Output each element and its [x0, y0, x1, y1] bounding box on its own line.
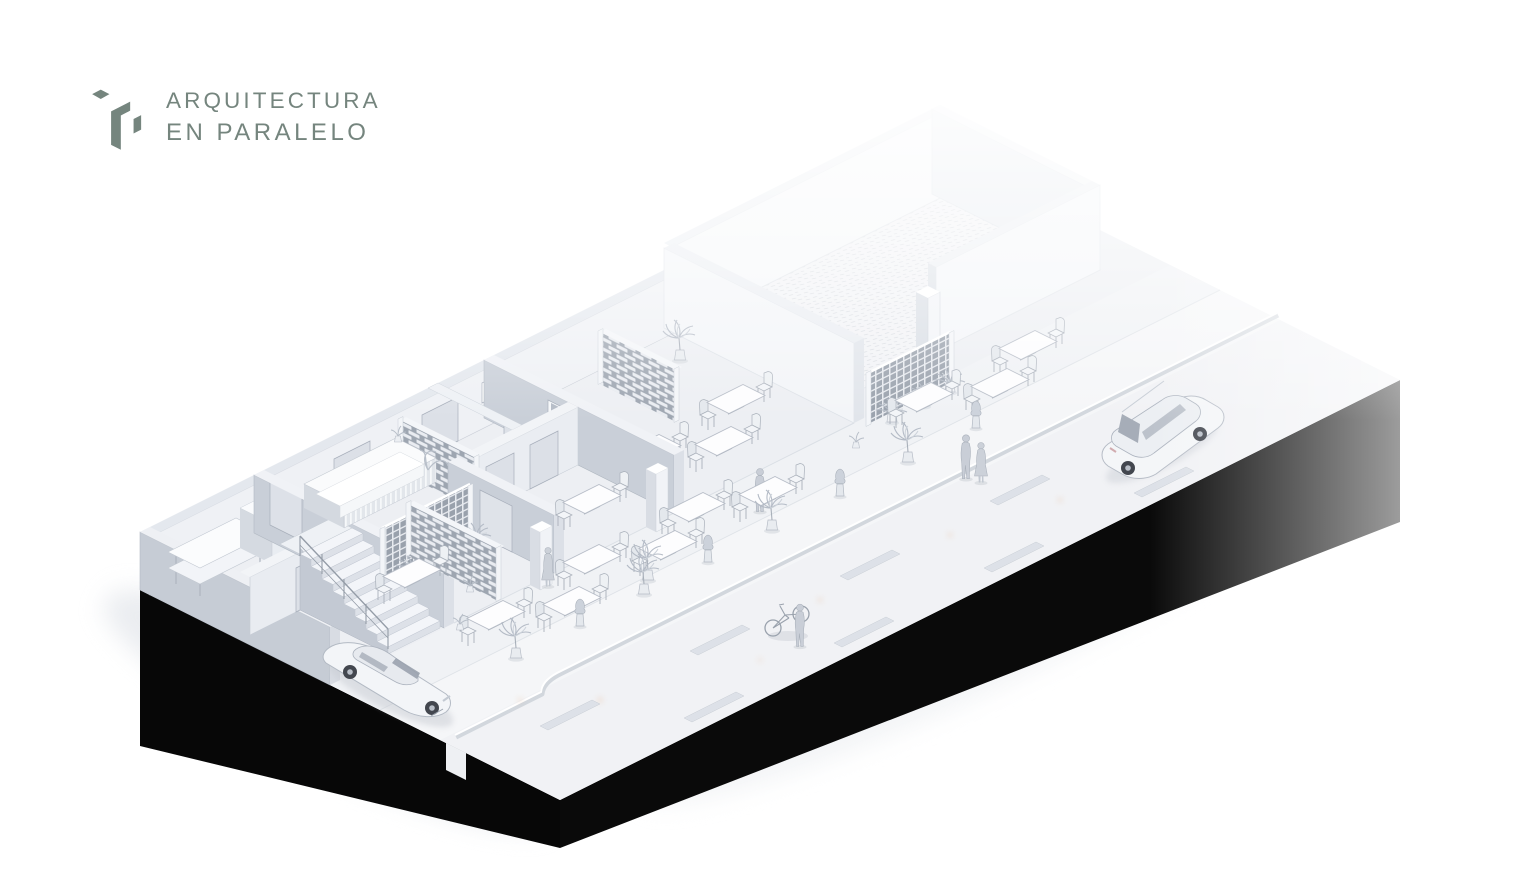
logo-diamond [92, 90, 109, 99]
brand-name: ARQUITECTURA EN PARALELO [166, 84, 381, 145]
screen-post [496, 546, 501, 602]
white-fade-right [1100, 0, 1536, 878]
logo-small-shape [134, 115, 142, 133]
brand-name-line2: EN PARALELO [166, 121, 381, 145]
brand-logo: ARQUITECTURA EN PARALELO [88, 84, 381, 156]
brand-name-line1: ARQUITECTURA [166, 90, 381, 113]
arquitectura-en-paralelo-logo-icon [88, 84, 146, 156]
logo-main-shape [111, 102, 130, 150]
car-wheel-hub [429, 705, 435, 711]
page: ARQUITECTURA EN PARALELO [0, 0, 1536, 878]
screen-post [406, 501, 411, 557]
car-wheel-hub [347, 669, 353, 675]
